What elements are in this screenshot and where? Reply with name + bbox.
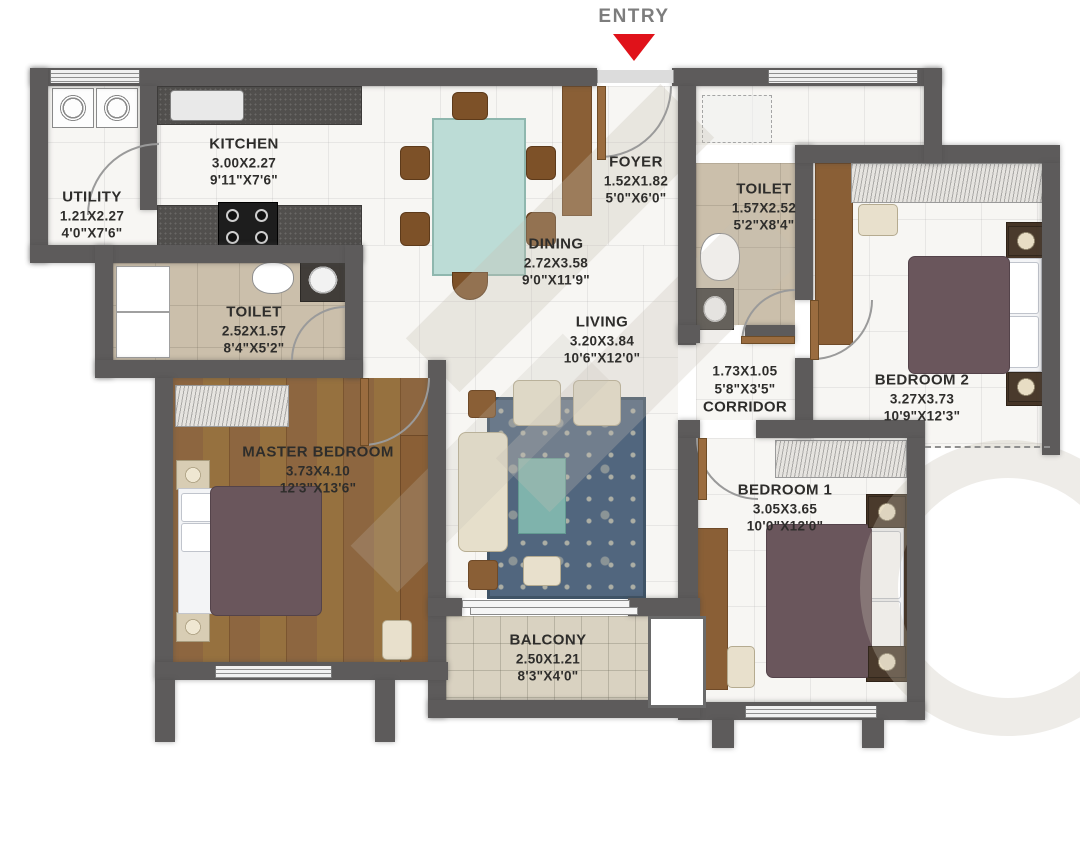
washer-icon xyxy=(52,88,94,128)
entry-threshold xyxy=(597,70,674,83)
room-label-bedroom2: BEDROOM 2 3.27X3.73 10'9"X12'3" xyxy=(875,371,969,426)
sofa xyxy=(458,432,508,552)
shaft-box xyxy=(116,312,170,358)
dining-chair xyxy=(452,92,488,120)
armchair xyxy=(513,380,561,426)
wall xyxy=(907,438,925,720)
door-leaf-bedroom1 xyxy=(698,438,707,500)
kitchen-sink xyxy=(170,90,244,121)
wall xyxy=(428,598,462,616)
window xyxy=(50,70,140,83)
bed-duvet-master xyxy=(210,486,322,616)
wall xyxy=(155,680,175,742)
side-stool xyxy=(468,390,496,418)
side-stool xyxy=(468,560,498,590)
room-label-dining: DINING 2.72X3.58 9'0"X11'9" xyxy=(522,235,590,290)
bed-duvet-bedroom1 xyxy=(766,524,872,678)
nightstand xyxy=(868,496,906,528)
ottoman xyxy=(523,556,561,586)
bedroom-chair xyxy=(382,620,412,660)
bed-pillow xyxy=(1007,316,1039,368)
room-label-balcony: BALCONY 2.50X1.21 8'3"X4'0" xyxy=(510,631,587,686)
dashed-line xyxy=(925,446,1050,448)
dining-chair xyxy=(400,212,430,246)
room-label-kitchen: KITCHEN 3.00X2.27 9'11"X7'6" xyxy=(209,135,278,190)
room-label-toilet-top: TOILET 1.57X2.52 5'2"X8'4" xyxy=(732,180,796,235)
sliding-door xyxy=(470,607,638,615)
duct xyxy=(648,616,706,708)
door-leaf-toilet-top xyxy=(741,336,795,344)
bed-pillow xyxy=(1007,262,1039,314)
dining-chair xyxy=(400,146,430,180)
toilet-wc-icon xyxy=(252,262,294,294)
wall xyxy=(155,378,173,680)
door-leaf-entry xyxy=(597,86,606,160)
door-leaf-master xyxy=(360,378,369,446)
dining-chair xyxy=(526,146,556,180)
washer-icon xyxy=(96,88,138,128)
room-label-utility: UTILITY 1.21X2.27 4'0"X7'6" xyxy=(60,188,124,243)
rug-center xyxy=(518,458,566,534)
armchair xyxy=(573,380,621,426)
wardrobe-bedroom1 xyxy=(775,440,907,478)
room-label-master-bedroom: MASTER BEDROOM 3.73X4.10 12'3"X13'6" xyxy=(242,443,393,498)
washbasin-icon xyxy=(696,288,734,330)
wall xyxy=(795,145,813,300)
bed-pillow xyxy=(869,531,901,599)
wall xyxy=(95,360,362,378)
wall xyxy=(628,598,700,616)
nightstand xyxy=(176,612,210,642)
bed-duvet-bedroom2 xyxy=(908,256,1010,374)
nightstand xyxy=(1008,372,1044,402)
room-label-toilet-left: TOILET 2.52X1.57 8'4"X5'2" xyxy=(222,303,286,358)
shaft-box xyxy=(116,266,170,312)
bedroom-chair xyxy=(727,646,755,688)
living-rug xyxy=(487,397,646,599)
window xyxy=(768,70,918,83)
wall xyxy=(95,245,113,378)
window xyxy=(745,706,877,718)
washbasin-icon xyxy=(300,258,346,302)
wardrobe-bedroom2-top xyxy=(851,163,1044,203)
bedroom-chair xyxy=(858,204,898,236)
wall xyxy=(678,420,700,438)
wall xyxy=(712,720,734,748)
nightstand xyxy=(1008,226,1044,256)
wall xyxy=(678,325,700,343)
dining-table xyxy=(432,118,526,276)
room-label-foyer: FOYER 1.52X1.82 5'0"X6'0" xyxy=(604,153,668,208)
room-label-corridor: 1.73X1.05 5'8"X3'5" CORRIDOR xyxy=(703,363,787,418)
nightstand xyxy=(868,646,906,678)
toilet-wc-icon xyxy=(700,233,740,281)
window xyxy=(215,666,332,678)
foyer-cabinet xyxy=(562,86,592,216)
entry-arrow-icon xyxy=(613,34,655,61)
wall xyxy=(30,245,363,263)
door-leaf-bedroom2 xyxy=(810,300,819,360)
wall xyxy=(30,68,48,263)
stove-icon xyxy=(218,202,278,250)
room-label-living: LIVING 3.20X3.84 10'6"X12'0" xyxy=(564,313,641,368)
nightstand xyxy=(176,460,210,490)
wall xyxy=(345,245,363,378)
wall xyxy=(678,86,696,345)
wall xyxy=(924,68,942,163)
room-label-bedroom1: BEDROOM 1 3.05X3.65 10'0"X12'0" xyxy=(738,481,832,536)
wardrobe-master xyxy=(175,385,289,427)
wall xyxy=(862,720,884,748)
wall xyxy=(375,680,395,742)
overhead-storage xyxy=(702,95,772,143)
wall xyxy=(1042,163,1060,455)
entry-label: ENTRY xyxy=(598,6,669,28)
floor-plan: ENTRY KITCHEN 3.00X2.27 9'11"X7'6" UTILI… xyxy=(0,0,1080,867)
